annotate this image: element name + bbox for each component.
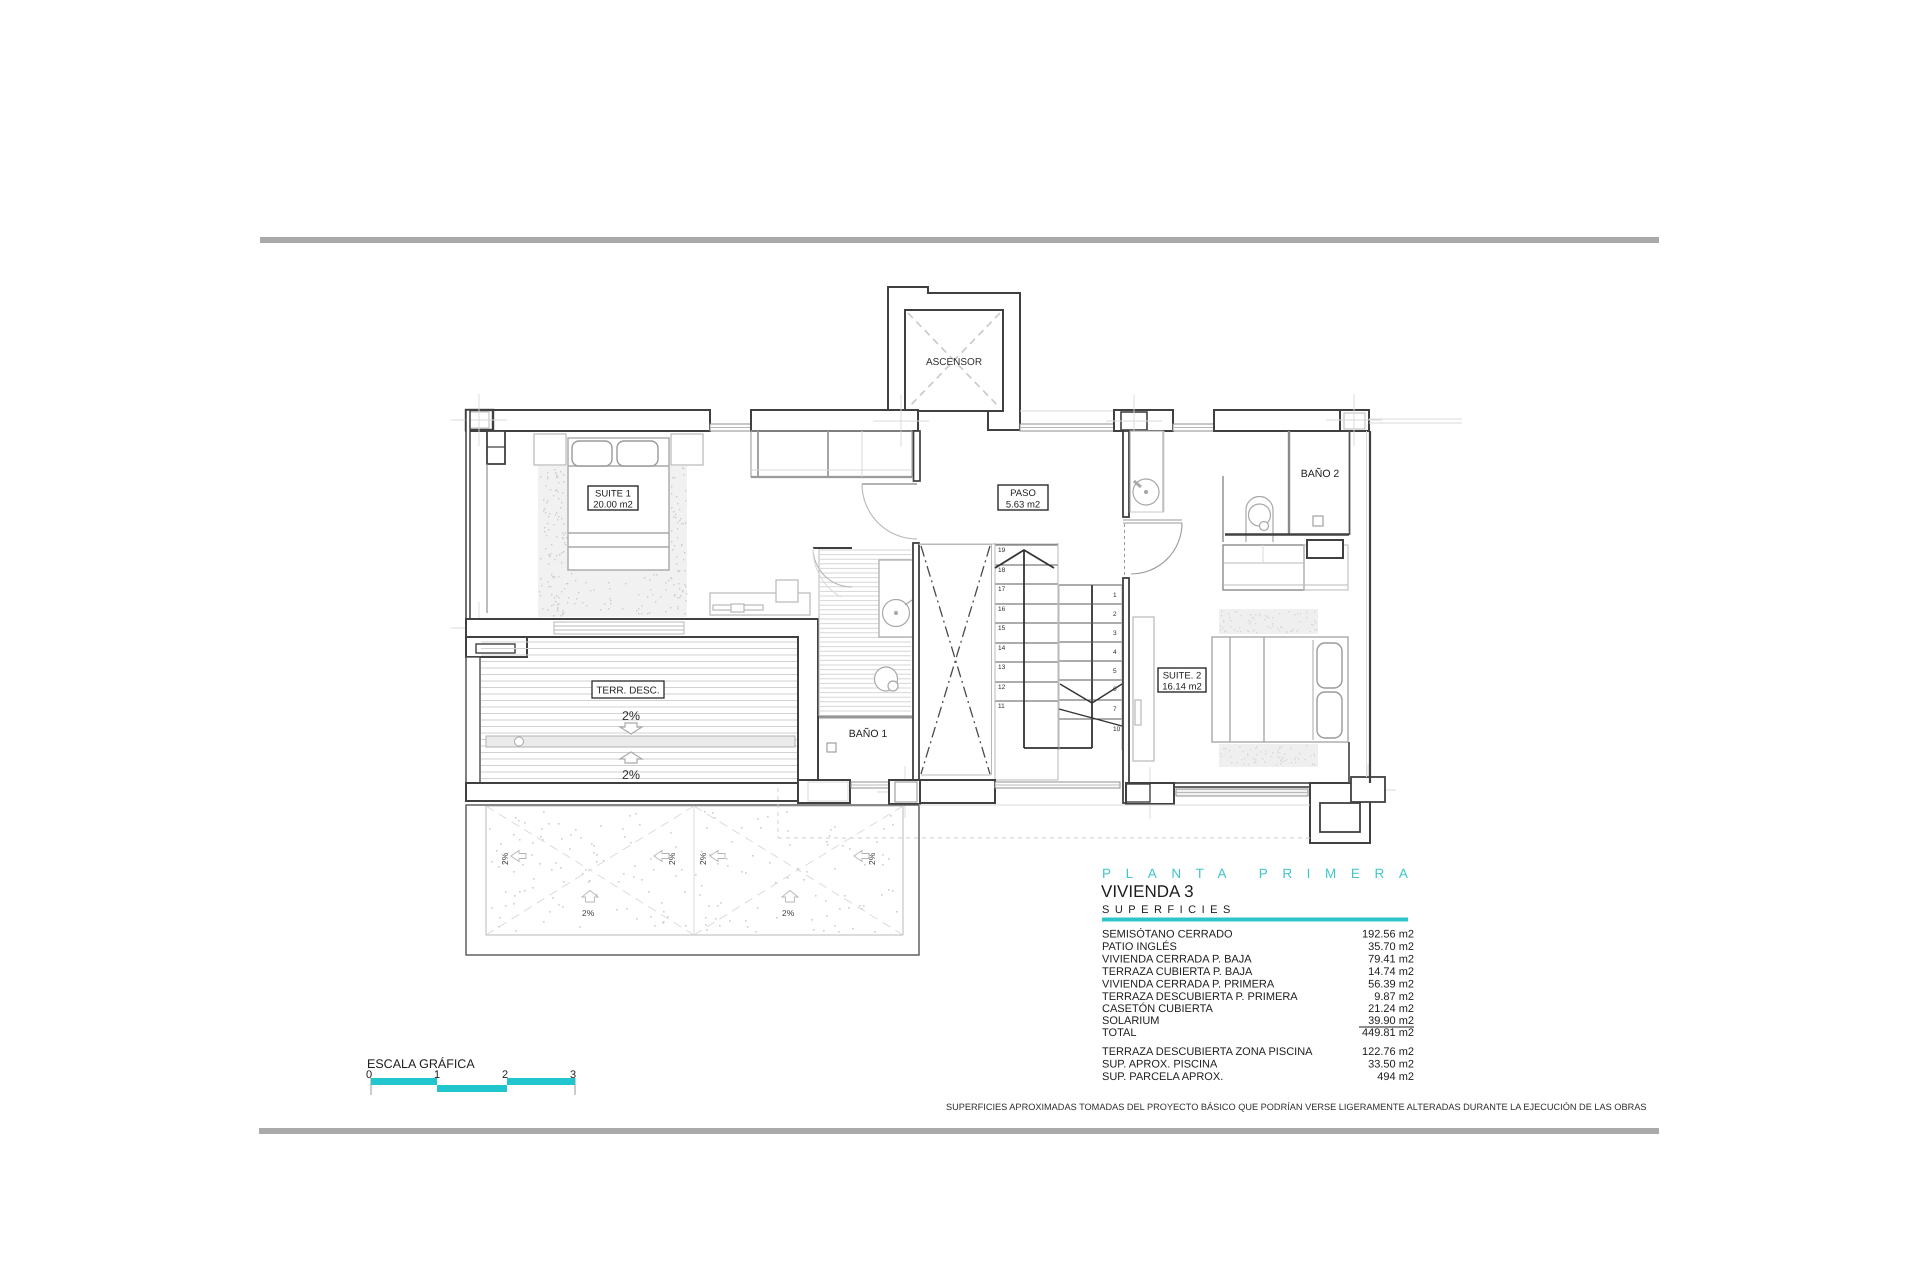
svg-text:14: 14: [998, 645, 1006, 652]
svg-text:2%: 2%: [582, 908, 595, 918]
svg-text:13: 13: [998, 664, 1006, 671]
svg-text:PATIO INGLÉS: PATIO INGLÉS: [1102, 940, 1177, 953]
svg-text:4: 4: [1113, 649, 1117, 656]
svg-text:1: 1: [1113, 592, 1117, 599]
svg-text:16.14 m2: 16.14 m2: [1162, 682, 1202, 693]
svg-text:19: 19: [998, 547, 1006, 554]
svg-text:11: 11: [998, 703, 1005, 710]
svg-text:10: 10: [1113, 726, 1121, 733]
svg-text:SUITE. 2: SUITE. 2: [1163, 671, 1202, 682]
svg-text:3: 3: [1113, 630, 1117, 637]
svg-text:17: 17: [998, 586, 1006, 593]
svg-text:5: 5: [1113, 668, 1117, 675]
svg-text:39.90 m2: 39.90 m2: [1368, 1015, 1414, 1027]
svg-text:SUP. APROX. PISCINA: SUP. APROX. PISCINA: [1102, 1059, 1218, 1071]
svg-text:TERRAZA DESCUBIERTA ZONA PISC: TERRAZA DESCUBIERTA ZONA PISCINA: [1102, 1046, 1313, 1058]
svg-text:122.76 m2: 122.76 m2: [1362, 1046, 1414, 1058]
svg-text:CASETÓN CUBIERTA: CASETÓN CUBIERTA: [1102, 1002, 1213, 1015]
svg-text:PASO: PASO: [1010, 488, 1036, 499]
svg-text:VIVIENDA 3: VIVIENDA 3: [1101, 882, 1194, 901]
svg-text:SUITE 1: SUITE 1: [595, 489, 631, 500]
svg-text:ASCENSOR: ASCENSOR: [926, 357, 982, 368]
svg-text:12: 12: [998, 684, 1006, 691]
svg-text:2%: 2%: [500, 852, 510, 865]
svg-text:TERRAZA CUBIERTA P. BAJA: TERRAZA CUBIERTA P. BAJA: [1102, 966, 1253, 978]
svg-text:9.87 m2: 9.87 m2: [1374, 991, 1414, 1003]
svg-text:PLANTA PRIMERA: PLANTA PRIMERA: [1102, 866, 1422, 881]
svg-text:494 m2: 494 m2: [1377, 1071, 1414, 1083]
svg-text:2: 2: [1113, 611, 1117, 618]
svg-text:79.41 m2: 79.41 m2: [1368, 954, 1414, 966]
svg-text:VIVIENDA CERRADA P. BAJA: VIVIENDA CERRADA P. BAJA: [1102, 954, 1252, 966]
svg-text:SEMISÓTANO CERRADO: SEMISÓTANO CERRADO: [1102, 928, 1233, 941]
svg-text:2%: 2%: [622, 709, 640, 723]
svg-text:TOTAL: TOTAL: [1102, 1027, 1136, 1039]
svg-text:BAÑO 1: BAÑO 1: [849, 727, 888, 740]
svg-text:14.74 m2: 14.74 m2: [1368, 966, 1414, 978]
svg-text:5.63 m2: 5.63 m2: [1006, 500, 1040, 511]
svg-text:2%: 2%: [782, 908, 795, 918]
svg-text:BAÑO 2: BAÑO 2: [1301, 467, 1340, 480]
svg-text:192.56 m2: 192.56 m2: [1362, 929, 1414, 941]
svg-text:SUP. PARCELA APROX.: SUP. PARCELA APROX.: [1102, 1071, 1223, 1083]
svg-text:18: 18: [998, 567, 1006, 574]
svg-text:TERR. DESC.: TERR. DESC.: [596, 686, 659, 697]
svg-text:35.70 m2: 35.70 m2: [1368, 941, 1414, 953]
svg-text:SOLARIUM: SOLARIUM: [1102, 1015, 1159, 1027]
svg-text:21.24 m2: 21.24 m2: [1368, 1003, 1414, 1015]
svg-text:15: 15: [998, 625, 1006, 632]
svg-text:ESCALA GRÁFICA: ESCALA GRÁFICA: [367, 1057, 475, 1071]
svg-text:20.00 m2: 20.00 m2: [593, 500, 633, 511]
svg-text:2%: 2%: [622, 768, 640, 782]
svg-text:33.50 m2: 33.50 m2: [1368, 1059, 1414, 1071]
svg-text:16: 16: [998, 606, 1006, 613]
svg-text:VIVIENDA CERRADA P. PRIMERA: VIVIENDA CERRADA P. PRIMERA: [1102, 979, 1275, 991]
svg-text:449.81 m2: 449.81 m2: [1362, 1027, 1414, 1039]
svg-text:TERRAZA DESCUBIERTA P. PRIMERA: TERRAZA DESCUBIERTA P. PRIMERA: [1102, 991, 1298, 1003]
svg-text:56.39 m2: 56.39 m2: [1368, 979, 1414, 991]
svg-text:2%: 2%: [698, 852, 708, 865]
svg-text:7: 7: [1113, 706, 1117, 713]
svg-text:SUPERFICIES: SUPERFICIES: [1102, 904, 1236, 916]
svg-text:SUPERFICIES APROXIMADAS TOMADA: SUPERFICIES APROXIMADAS TOMADAS DEL PROY…: [946, 1102, 1646, 1112]
